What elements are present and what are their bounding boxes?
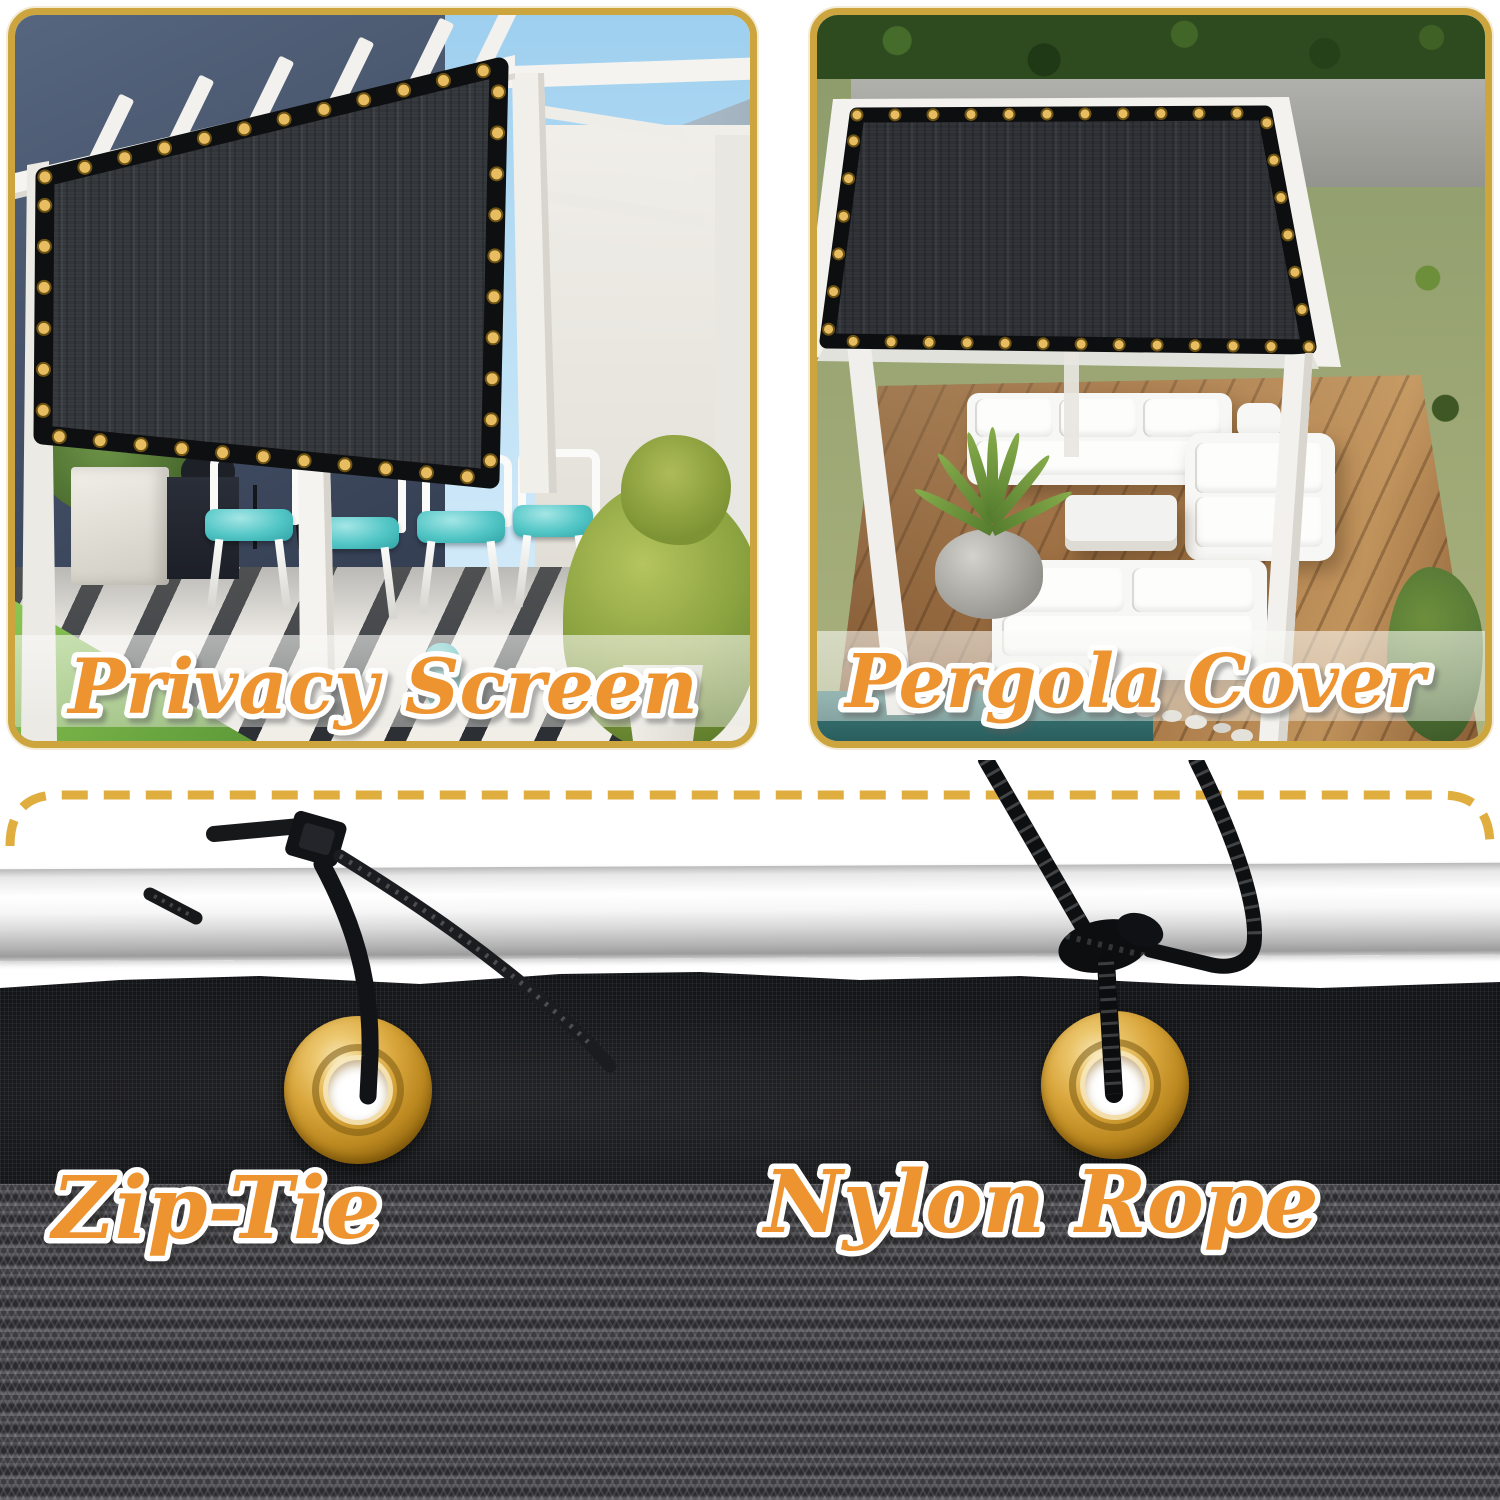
privacy-screen-panel: Privacy Screen — [8, 8, 757, 748]
pergola-cover-label: Pergola Cover — [843, 639, 1430, 725]
nylon-rope-label: Nylon Rope — [761, 1152, 1319, 1253]
mounting-hardware-section: Zip-Tie Nylon Rope — [0, 760, 1500, 1500]
privacy-screen-caption: Privacy Screen — [15, 15, 750, 741]
privacy-screen-label: Privacy Screen — [66, 642, 698, 731]
hardware-labels: Zip-Tie Nylon Rope — [0, 760, 1500, 1500]
product-collage: Privacy Screen — [0, 0, 1500, 1500]
zip-tie-label: Zip-Tie — [49, 1158, 380, 1259]
pergola-cover-caption: Pergola Cover — [817, 15, 1492, 741]
pergola-cover-panel: Pergola Cover — [810, 8, 1492, 748]
